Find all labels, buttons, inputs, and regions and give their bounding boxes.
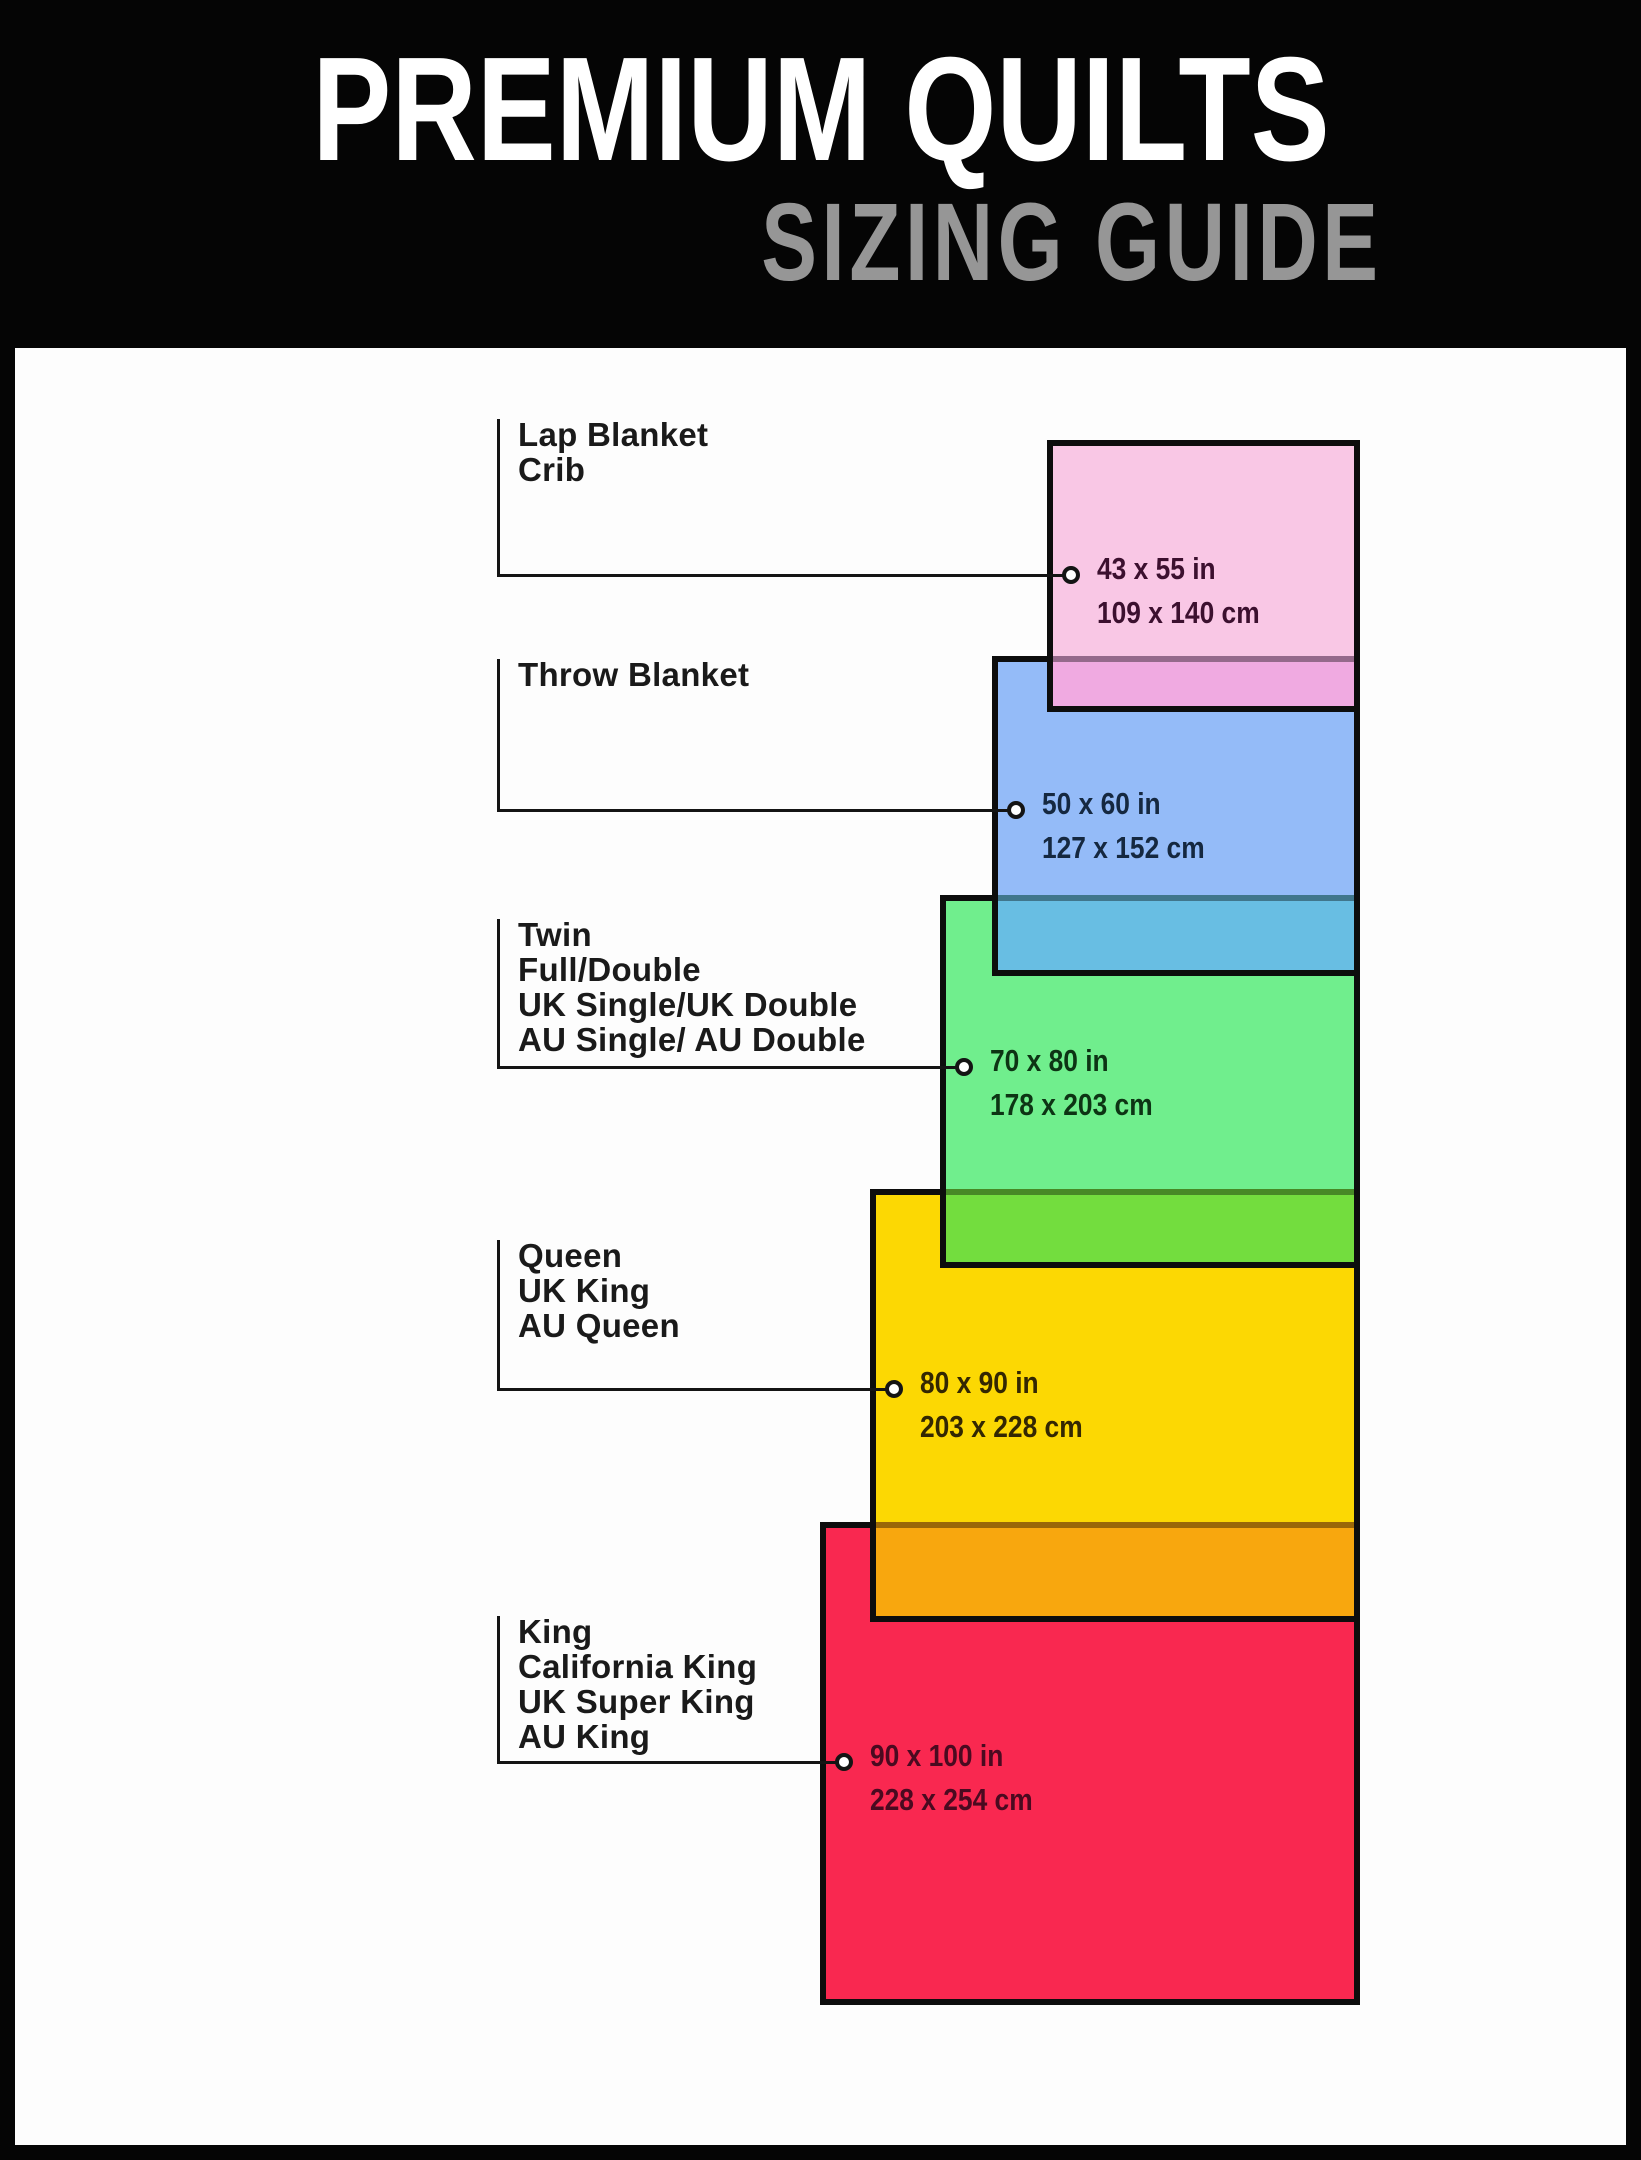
label-twin: TwinFull/DoubleUK Single/UK DoubleAU Sin…	[518, 917, 866, 1057]
leader-dot-throw	[1007, 801, 1025, 819]
overlap-border-line	[876, 1522, 1354, 1528]
overlap-border-line	[998, 895, 1354, 901]
label-line: AU Single/ AU Double	[518, 1022, 866, 1057]
dimensions-throw: 50 x 60 in127 x 152 cm	[1042, 782, 1205, 870]
dimensions-queen: 80 x 90 in203 x 228 cm	[920, 1361, 1083, 1449]
dimension-centimeters: 127 x 152 cm	[1042, 826, 1205, 870]
label-line: Full/Double	[518, 952, 866, 987]
label-lap-crib: Lap BlanketCrib	[518, 417, 708, 487]
leader-line-king	[497, 1761, 836, 1764]
dimensions-twin: 70 x 80 in178 x 203 cm	[990, 1039, 1153, 1127]
label-queen: QueenUK KingAU Queen	[518, 1238, 680, 1343]
bracket-line-king	[497, 1616, 500, 1764]
label-line: Lap Blanket	[518, 417, 708, 452]
dimensions-lap-crib: 43 x 55 in109 x 140 cm	[1097, 547, 1260, 635]
label-line: Crib	[518, 452, 708, 487]
dimension-centimeters: 178 x 203 cm	[990, 1083, 1153, 1127]
leader-dot-king	[835, 1753, 853, 1771]
label-line: Twin	[518, 917, 866, 952]
leader-dot-queen	[885, 1380, 903, 1398]
dimension-inches: 43 x 55 in	[1097, 547, 1260, 591]
dimension-centimeters: 228 x 254 cm	[870, 1778, 1033, 1822]
bracket-line-queen	[497, 1240, 500, 1391]
dimension-inches: 80 x 90 in	[920, 1361, 1083, 1405]
bracket-line-throw	[497, 659, 500, 812]
dimension-inches: 70 x 80 in	[990, 1039, 1153, 1083]
overlap-border-line	[1053, 656, 1354, 662]
overlap-region-lap-crib-throw	[1053, 656, 1354, 706]
leader-line-queen	[497, 1388, 886, 1391]
overlap-region-twin-queen	[946, 1189, 1354, 1262]
page-subtitle: SIZING GUIDE	[762, 188, 1383, 298]
infographic-page: PREMIUM QUILTS SIZING GUIDE Lap BlanketC…	[0, 0, 1641, 2160]
overlap-border-line	[946, 1189, 1354, 1195]
label-line: Throw Blanket	[518, 657, 749, 692]
label-line: UK Single/UK Double	[518, 987, 866, 1022]
label-line: Queen	[518, 1238, 680, 1273]
dimension-centimeters: 109 x 140 cm	[1097, 591, 1260, 635]
bracket-line-twin	[497, 919, 500, 1069]
label-king: KingCalifornia KingUK Super KingAU King	[518, 1614, 757, 1754]
label-line: UK Super King	[518, 1684, 757, 1719]
leader-line-lap-crib	[497, 574, 1063, 577]
label-line: AU Queen	[518, 1308, 680, 1343]
dimension-centimeters: 203 x 228 cm	[920, 1405, 1083, 1449]
leader-dot-twin	[955, 1058, 973, 1076]
dimension-inches: 50 x 60 in	[1042, 782, 1205, 826]
overlap-region-queen-king	[876, 1522, 1354, 1616]
dimensions-king: 90 x 100 in228 x 254 cm	[870, 1734, 1033, 1822]
label-line: UK King	[518, 1273, 680, 1308]
label-line: AU King	[518, 1719, 757, 1754]
leader-dot-lap-crib	[1062, 566, 1080, 584]
label-line: King	[518, 1614, 757, 1649]
label-throw: Throw Blanket	[518, 657, 749, 692]
overlap-region-throw-twin	[998, 895, 1354, 970]
leader-line-throw	[497, 809, 1008, 812]
page-title: PREMIUM QUILTS	[312, 36, 1329, 184]
bracket-line-lap-crib	[497, 419, 500, 577]
dimension-inches: 90 x 100 in	[870, 1734, 1033, 1778]
leader-line-twin	[497, 1066, 956, 1069]
label-line: California King	[518, 1649, 757, 1684]
